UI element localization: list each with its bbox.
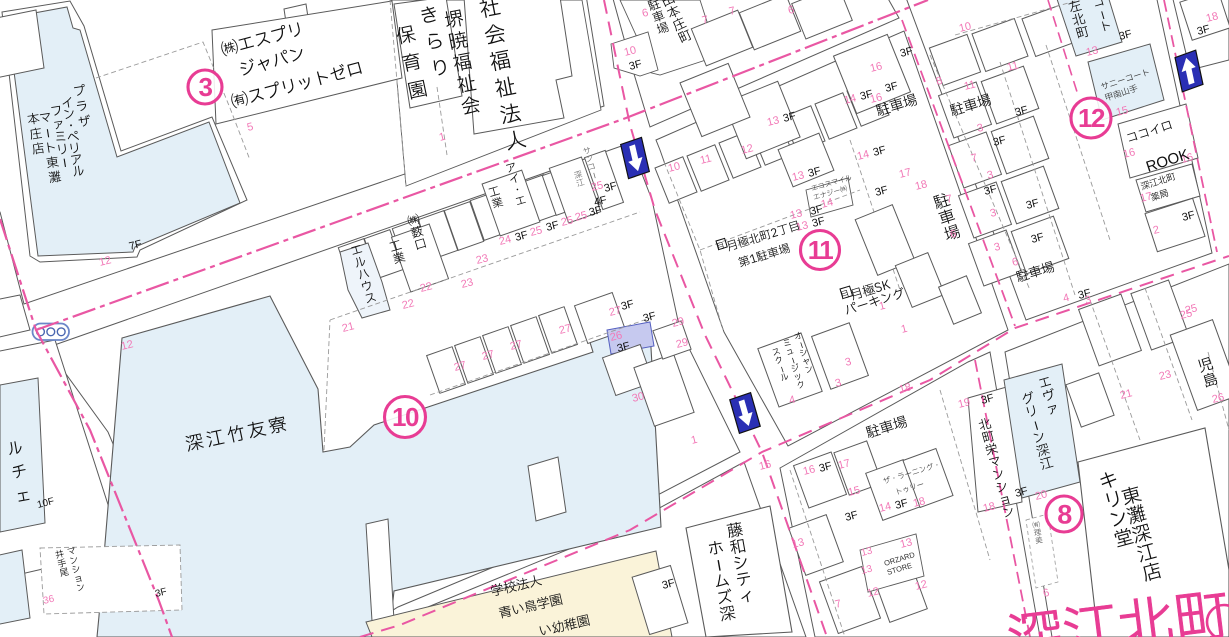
svg-text:12: 12 (1078, 103, 1105, 133)
svg-text:10: 10 (392, 402, 419, 432)
svg-text:3: 3 (199, 72, 213, 102)
svg-text:8: 8 (1057, 500, 1072, 530)
svg-text:11: 11 (808, 235, 834, 265)
